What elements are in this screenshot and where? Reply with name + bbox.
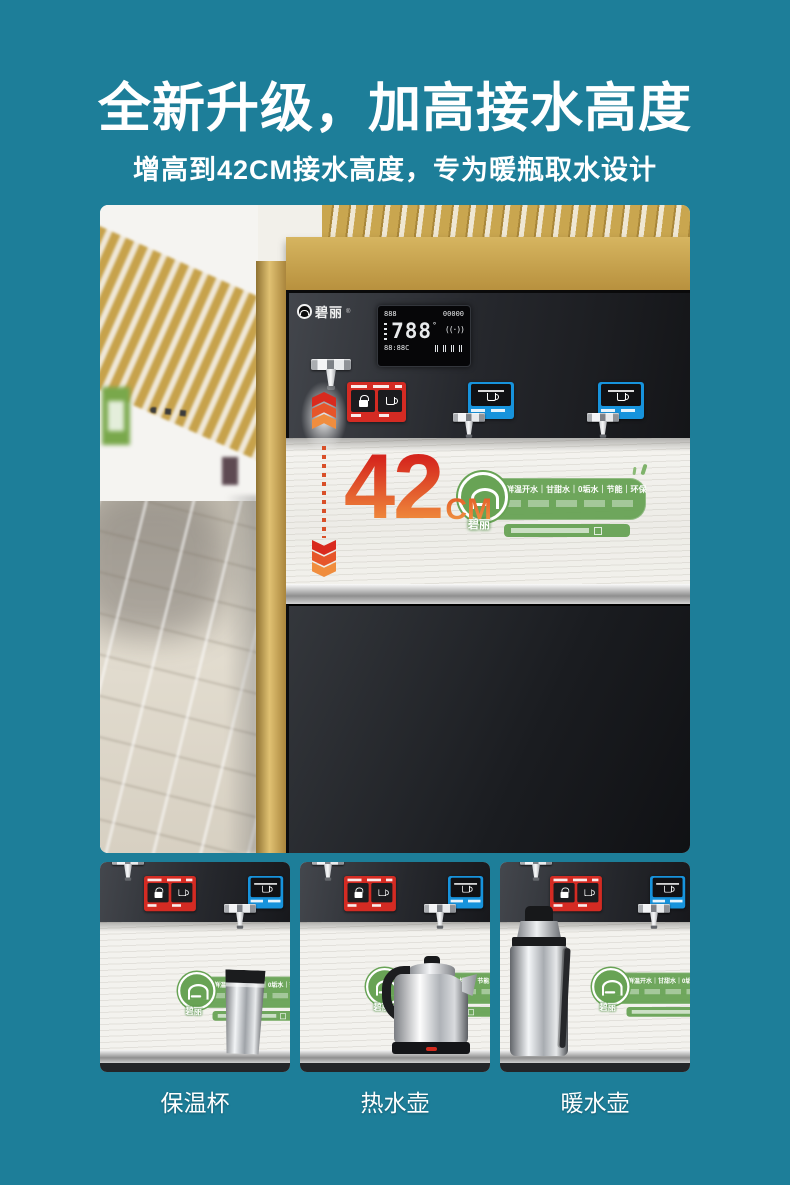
arrow-down-icon xyxy=(312,540,336,573)
middle-faucet xyxy=(453,413,485,438)
display-temperature: 788 xyxy=(391,320,432,342)
faucet-bar xyxy=(453,413,485,422)
faucet-spout xyxy=(464,421,474,435)
thumb-label-thermos-cup: 保温杯 xyxy=(100,1084,290,1118)
cup-icon xyxy=(462,885,470,892)
cup-icon xyxy=(178,889,186,896)
silver-tray xyxy=(100,1050,290,1063)
lower-cabinet xyxy=(286,604,690,853)
silver-band xyxy=(286,584,690,604)
thermos-cup xyxy=(223,969,266,1054)
water-dispenser: 碧丽 ® 888 00000 788 ° ((·)) 88:8 xyxy=(286,290,690,853)
button-labels xyxy=(351,385,402,388)
button-sublabels xyxy=(351,414,402,417)
badge-bottom-strip xyxy=(504,524,630,537)
badge-slogan: 新鲜温开水｜甘甜水｜0垢水｜节能｜环保 xyxy=(498,484,640,495)
red-button-panel[interactable] xyxy=(347,382,406,422)
lock-icon xyxy=(154,891,162,897)
hallway-scene xyxy=(100,205,258,853)
cup-icon xyxy=(487,393,496,401)
display-segment-squares xyxy=(434,345,464,352)
electric-kettle xyxy=(382,956,477,1056)
height-indicator xyxy=(310,390,338,582)
measurement-unit: CM xyxy=(445,495,492,525)
signal-icon: ((·)) xyxy=(445,325,464,334)
page-title: 全新升级，加高接水高度 xyxy=(0,66,790,142)
middle-faucet xyxy=(224,904,256,929)
thumbnail-kettle: 新鲜温开水｜甘甜水｜0垢水｜节能｜环保 碧丽 xyxy=(300,862,490,1072)
left-faucet xyxy=(112,862,144,881)
glass-reflection xyxy=(226,495,258,853)
cup-icon xyxy=(617,393,626,401)
page-subtitle: 增高到42CM接水高度，专为暖瓶取水设计 xyxy=(0,148,790,187)
thumbnail-thermos-bottle: 新鲜温开水｜甘甜水｜0垢水｜节能｜环保 碧丽 xyxy=(500,862,690,1072)
dotted-line xyxy=(322,446,326,538)
brand-logo: 碧丽 ® xyxy=(297,302,350,321)
alcove-wood-slats xyxy=(322,205,690,239)
display-top-left: 888 xyxy=(384,311,397,318)
badge-strip-square xyxy=(594,527,602,535)
middle-faucet xyxy=(638,904,670,929)
cup-icon xyxy=(584,889,592,896)
cabinet-edge xyxy=(300,1063,490,1072)
badge-logo-icon xyxy=(592,968,630,1006)
faucet-bar xyxy=(311,359,351,370)
lock-icon xyxy=(359,400,368,407)
button-label-bar xyxy=(478,390,504,392)
brand-logo-icon xyxy=(297,304,312,319)
display-panel: 888 00000 788 ° ((·)) 88:88C xyxy=(377,305,471,367)
cabinet-edge xyxy=(500,1063,690,1072)
registered-mark: ® xyxy=(346,309,350,315)
kettle-body xyxy=(394,974,468,1044)
button-face xyxy=(471,384,511,406)
unlock-button[interactable] xyxy=(351,390,375,412)
left-faucet xyxy=(520,862,552,881)
red-button-panel[interactable] xyxy=(344,876,396,911)
lock-icon xyxy=(560,891,568,897)
badge-logo-icon xyxy=(178,972,216,1010)
gold-frame xyxy=(256,261,286,853)
arrow-up-icon xyxy=(312,392,336,425)
wall-poster xyxy=(102,387,130,445)
faucet-spout xyxy=(598,421,608,435)
degree-icon: ° xyxy=(432,321,437,330)
button-sublabel xyxy=(471,409,511,412)
button-face xyxy=(601,384,641,406)
eco-badge: 新鲜温开水｜甘甜水｜0垢水｜节能｜环保 碧丽 xyxy=(592,968,690,1022)
badge-strip-text-bar xyxy=(511,528,589,533)
steam-icon xyxy=(632,467,636,475)
cup-icon xyxy=(664,885,672,892)
wall-posters xyxy=(160,431,218,477)
cup-icon xyxy=(386,397,395,405)
measurement-42cm: 42 CM xyxy=(344,445,492,529)
faucet-tip xyxy=(600,435,606,438)
bottle-cap xyxy=(525,906,553,922)
cabinet-edge xyxy=(100,1063,290,1072)
display-status-bars xyxy=(384,323,387,341)
right-faucet xyxy=(587,413,619,438)
bottle-shoulder xyxy=(517,921,561,938)
brand-name: 碧丽 xyxy=(315,302,343,321)
middle-faucet xyxy=(424,904,456,929)
wall-frame xyxy=(222,457,238,485)
alcove-gold-beam xyxy=(286,237,690,293)
display-top-right: 00000 xyxy=(443,311,464,318)
button-label-bar xyxy=(608,390,634,392)
faucet-bar xyxy=(587,413,619,422)
thumbnail-thermos-cup: 新鲜温开水｜甘甜水｜0垢水｜节能｜环保 碧丽 xyxy=(100,862,290,1072)
kettle-power-light xyxy=(426,1047,437,1051)
measurement-value: 42 xyxy=(344,445,442,529)
thumb-label-kettle: 热水壶 xyxy=(300,1084,490,1118)
thumb-dispenser-top xyxy=(300,862,490,922)
promo-page: 全新升级，加高接水高度 增高到42CM接水高度，专为暖瓶取水设计 碧丽 xyxy=(0,0,790,1185)
display-bottom: 88:88C xyxy=(384,344,409,352)
hero-photo: 碧丽 ® 888 00000 788 ° ((·)) 88:8 xyxy=(100,205,690,853)
cup-icon xyxy=(262,885,270,892)
thumb-label-thermos-bottle: 暖水壶 xyxy=(500,1084,690,1118)
hot-water-button[interactable] xyxy=(378,390,402,412)
lock-icon xyxy=(354,891,362,897)
badge-subtext-bars xyxy=(500,500,638,507)
cup-icon xyxy=(378,889,386,896)
thumb-dispenser-top xyxy=(100,862,290,922)
thermos-bottle xyxy=(510,906,568,1056)
badge-pill: 新鲜温开水｜甘甜水｜0垢水｜节能｜环保 xyxy=(492,478,646,520)
left-faucet xyxy=(312,862,344,881)
button-sublabel xyxy=(601,409,641,412)
red-button-panel[interactable] xyxy=(144,876,196,911)
faucet-tip xyxy=(466,435,472,438)
